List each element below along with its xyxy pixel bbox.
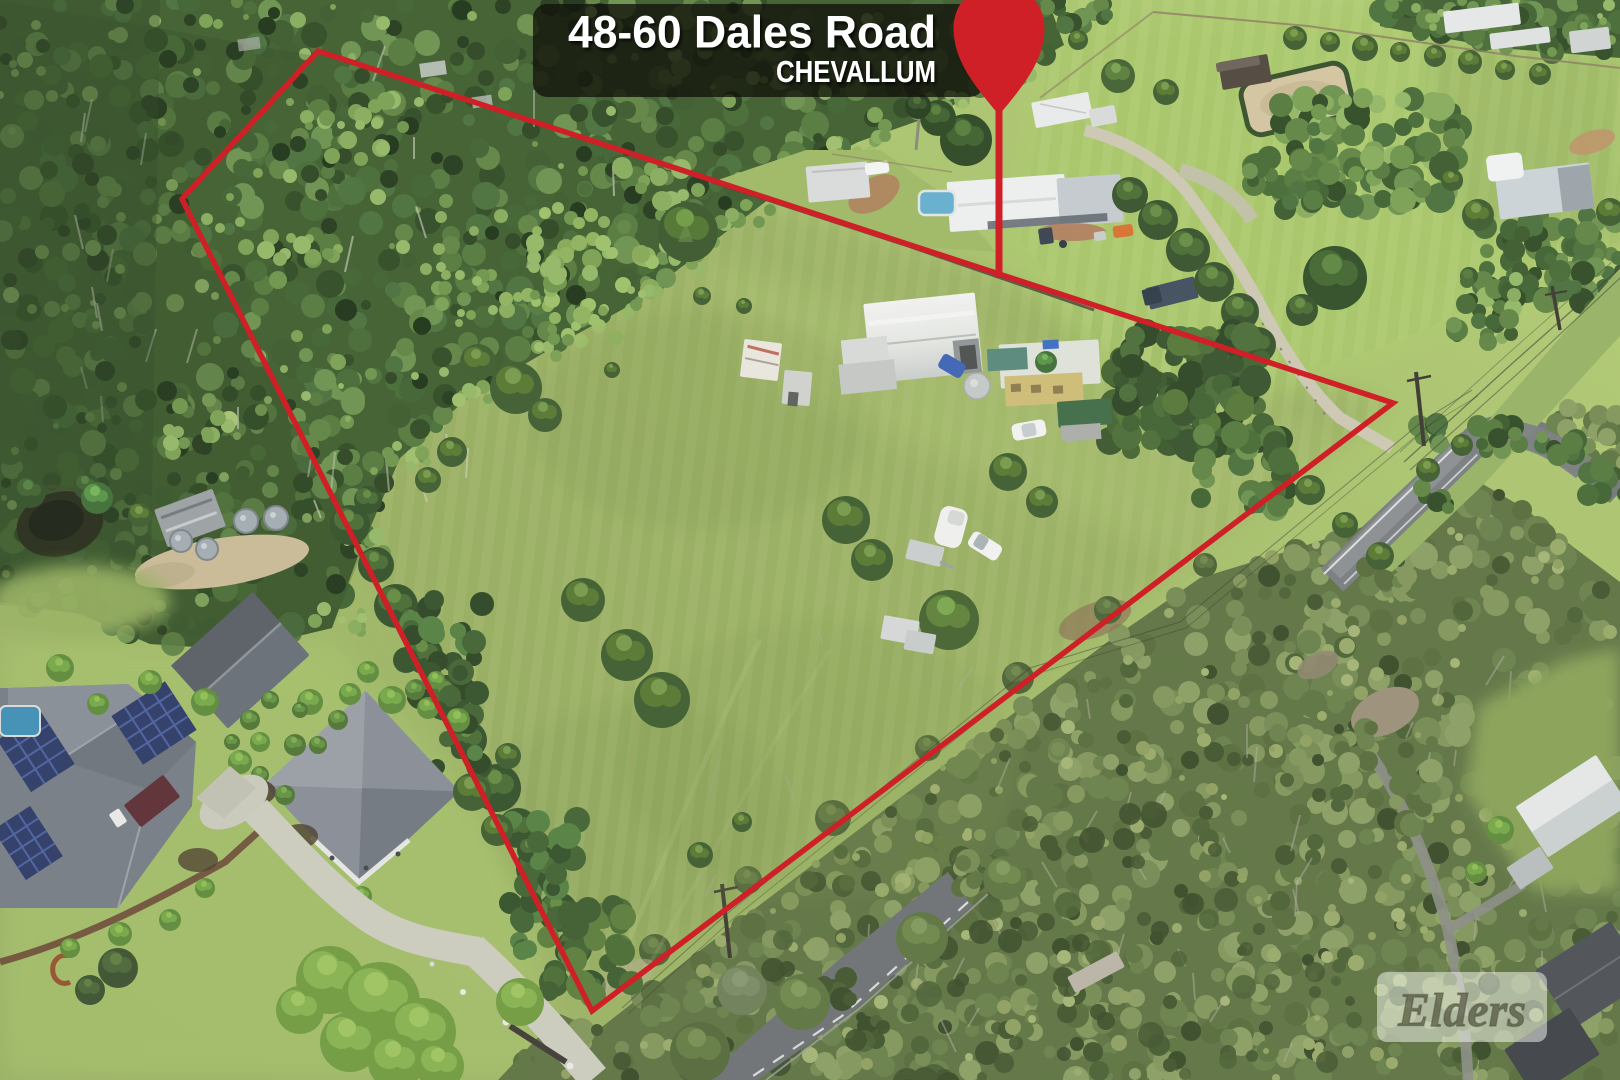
svg-text:48-60 Dales Road: 48-60 Dales Road: [568, 7, 936, 58]
svg-text:Elders: Elders: [1397, 984, 1526, 1037]
svg-text:CHEVALLUM: CHEVALLUM: [776, 54, 936, 89]
